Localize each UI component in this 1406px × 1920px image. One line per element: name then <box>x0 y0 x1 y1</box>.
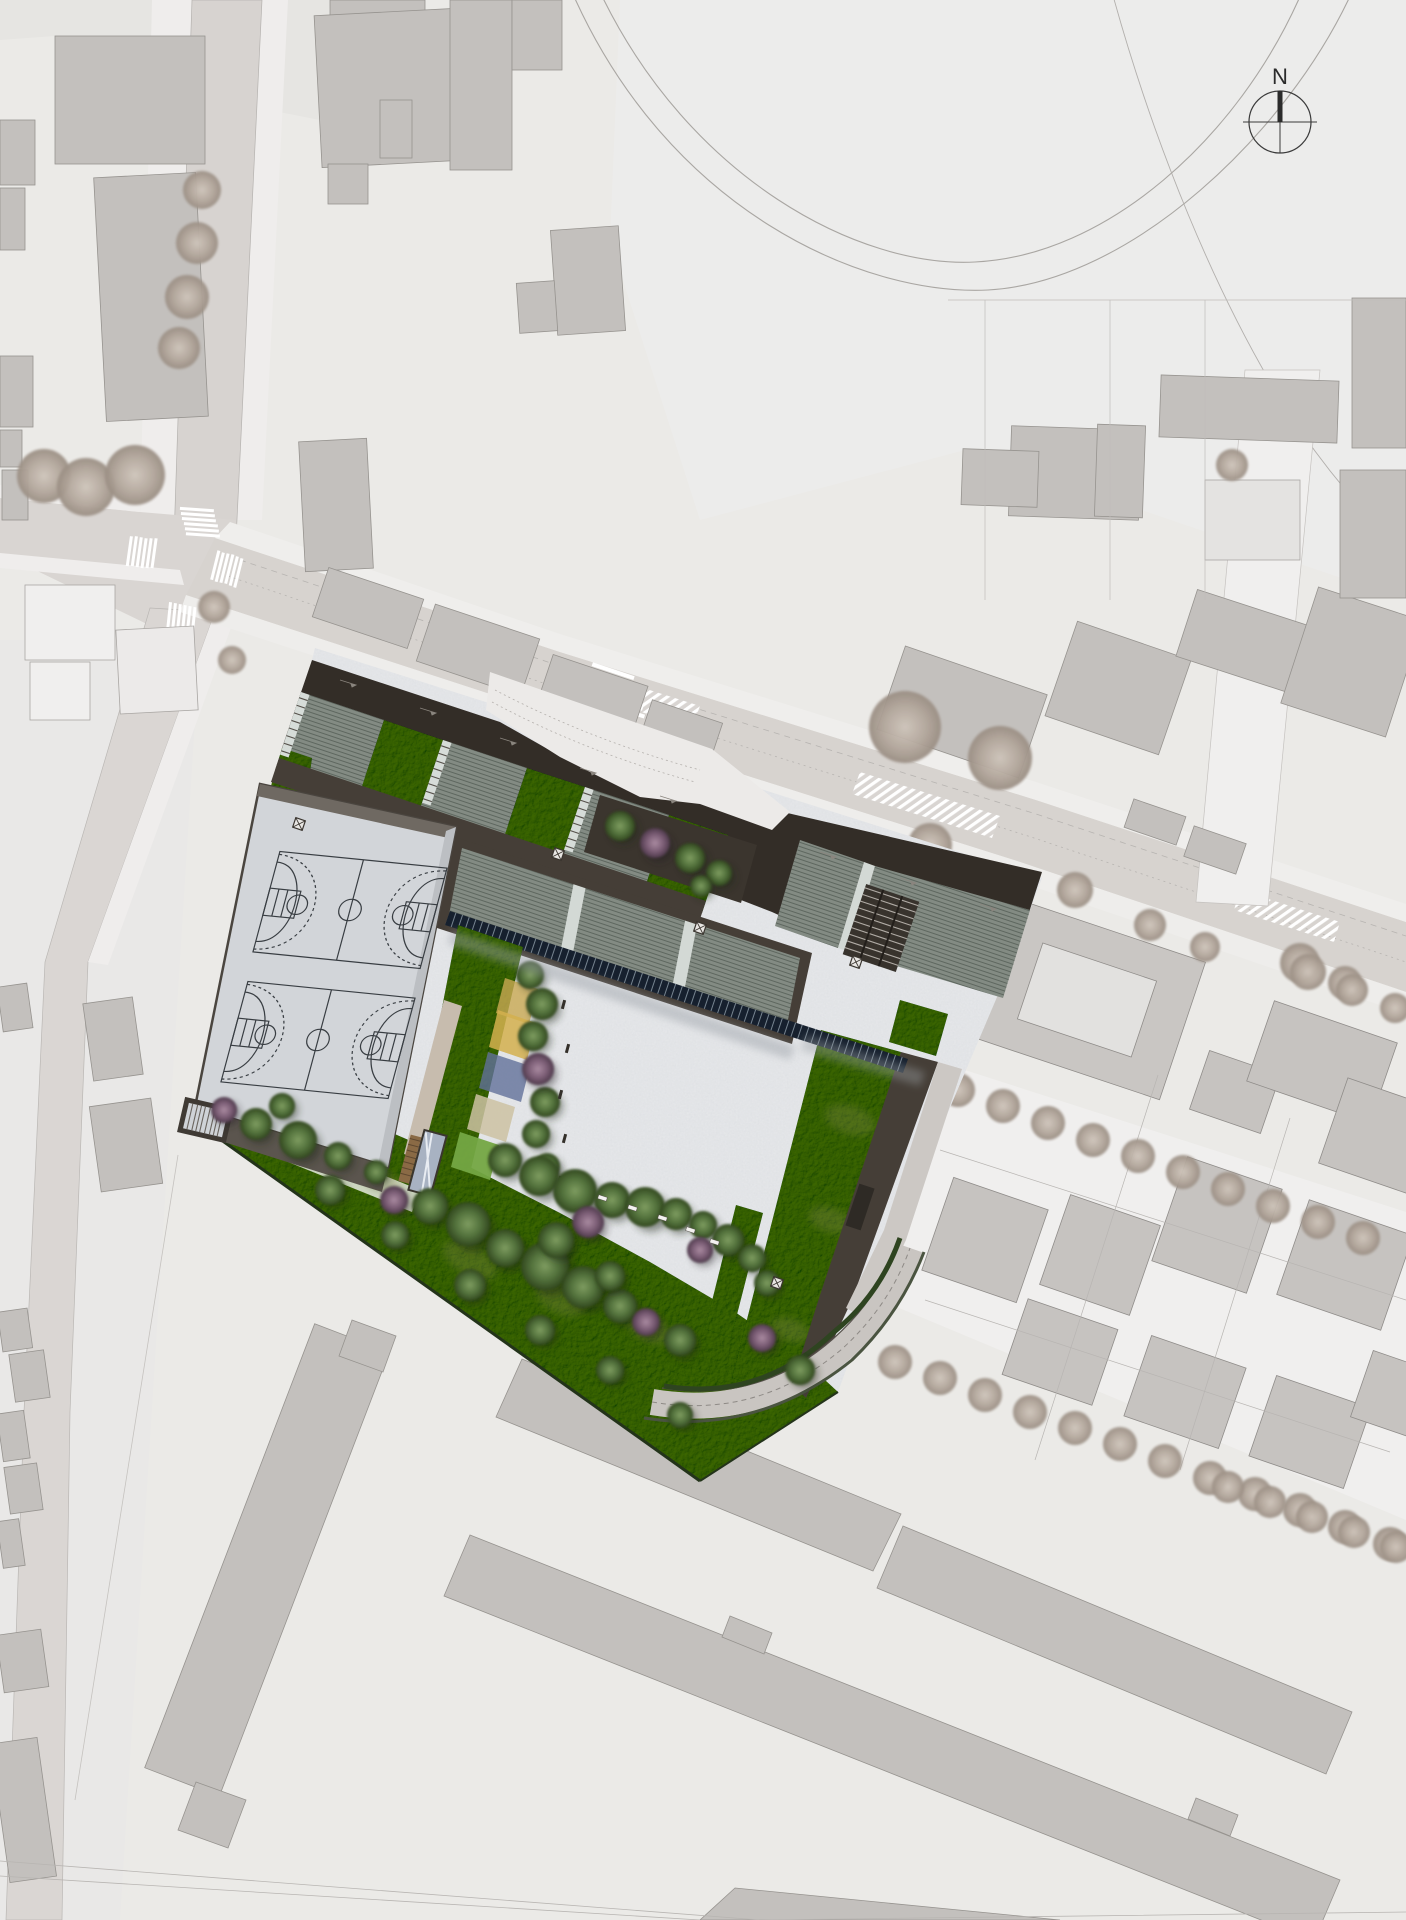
svg-text:N: N <box>1272 64 1288 89</box>
